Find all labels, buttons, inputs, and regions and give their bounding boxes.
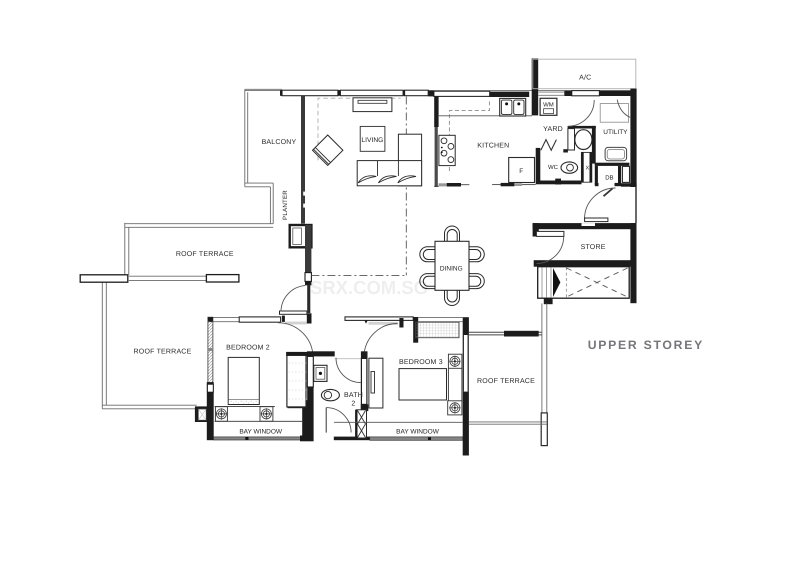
svg-text:WC: WC	[548, 164, 559, 171]
svg-text:BALCONY: BALCONY	[262, 139, 297, 146]
svg-text:YARD: YARD	[543, 126, 563, 133]
svg-text:LIVING: LIVING	[361, 137, 383, 144]
svg-text:ROOF TERRACE: ROOF TERRACE	[134, 348, 192, 355]
svg-text:UTILITY: UTILITY	[603, 129, 628, 136]
svg-text:X: X	[585, 166, 589, 172]
svg-text:F: F	[519, 168, 523, 175]
svg-text:A/C: A/C	[579, 73, 591, 81]
svg-text:WM: WM	[543, 102, 554, 109]
svg-text:PLANTER: PLANTER	[282, 190, 289, 220]
svg-text:ROOF TERRACE: ROOF TERRACE	[176, 251, 234, 258]
svg-text:BAY WINDOW: BAY WINDOW	[239, 428, 283, 435]
svg-text:BEDROOM 3: BEDROOM 3	[399, 359, 443, 366]
svg-text:BATH: BATH	[344, 392, 363, 399]
svg-text:STORE: STORE	[581, 244, 606, 251]
svg-text:UPPER STOREY: UPPER STOREY	[588, 338, 704, 352]
svg-text:KITCHEN: KITCHEN	[477, 142, 509, 149]
svg-text:2: 2	[351, 401, 355, 408]
svg-text:DB: DB	[605, 174, 613, 181]
svg-text:SRX.COM.SG: SRX.COM.SG	[310, 278, 428, 299]
svg-text:BAY WINDOW: BAY WINDOW	[396, 429, 440, 436]
svg-text:BEDROOM 2: BEDROOM 2	[226, 344, 270, 351]
svg-text:ROOF TERRACE: ROOF TERRACE	[477, 378, 535, 385]
svg-text:DINING: DINING	[440, 265, 463, 272]
